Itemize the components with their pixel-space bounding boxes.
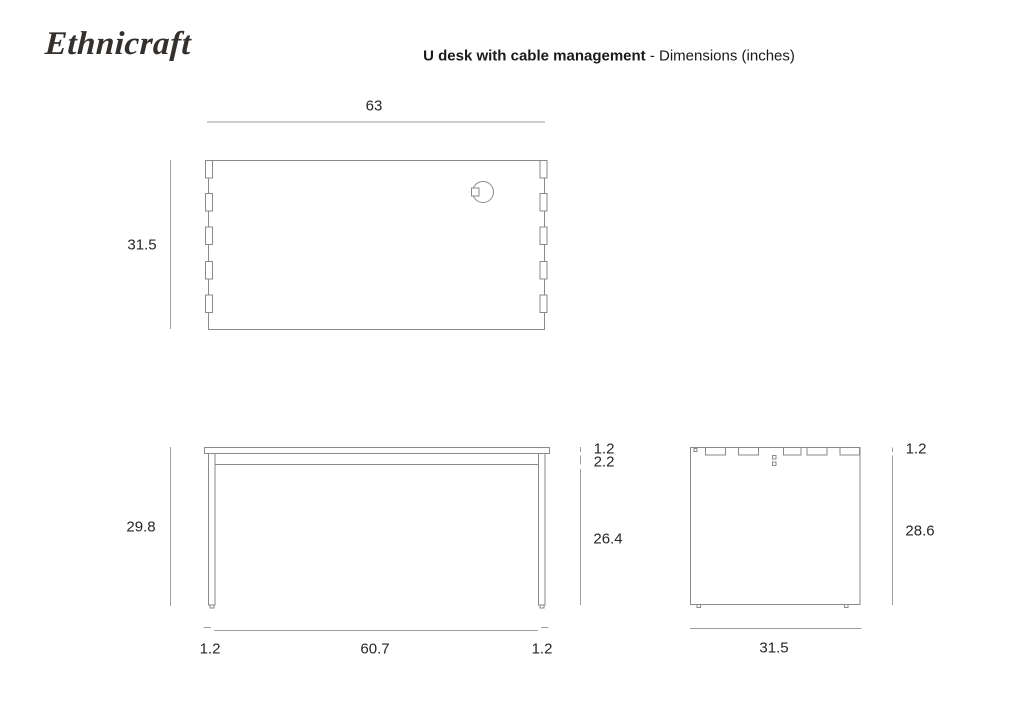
side-view-drawing (690, 448, 893, 629)
side-view-panel (691, 448, 861, 605)
front-view-right-foot (540, 605, 544, 608)
front-view-bottom-dim-line (204, 628, 549, 631)
dim-label-side-top: 1.2 (906, 443, 927, 456)
dim-label-front-frame: 2.2 (594, 456, 615, 469)
top-view-outline (209, 161, 545, 330)
side-view-joint-notches (706, 448, 860, 456)
front-view-right-leg (539, 454, 546, 606)
cable-grommet (472, 182, 494, 203)
front-view-left-leg (209, 454, 216, 606)
dim-label-front-left-leg: 1.2 (200, 643, 221, 656)
dim-label-front-right-leg: 1.2 (532, 643, 553, 656)
dim-label-side-height: 28.6 (905, 525, 934, 538)
dim-label-side-depth: 31.5 (759, 642, 788, 655)
dim-label-top-depth: 31.5 (127, 239, 156, 252)
side-view-left-foot (697, 605, 701, 608)
side-view-fixing-holes (694, 449, 776, 466)
technical-drawing-canvas (0, 0, 1024, 726)
front-view-tabletop (205, 448, 550, 454)
top-view-right-joint-notches (540, 161, 547, 313)
top-view-drawing (171, 122, 548, 330)
front-view-left-foot (210, 605, 214, 608)
dimension-sheet: { "header": { "logo_text": "Ethnicraft",… (0, 0, 1024, 726)
cable-grommet-notch (472, 188, 480, 196)
dim-label-front-span: 60.7 (360, 643, 389, 656)
dim-label-front-clearance: 26.4 (593, 533, 622, 546)
side-view-right-foot (845, 605, 849, 608)
dim-label-front-height: 29.8 (126, 521, 155, 534)
dim-label-top-width: 63 (366, 100, 383, 113)
front-view-drawing (171, 447, 581, 631)
